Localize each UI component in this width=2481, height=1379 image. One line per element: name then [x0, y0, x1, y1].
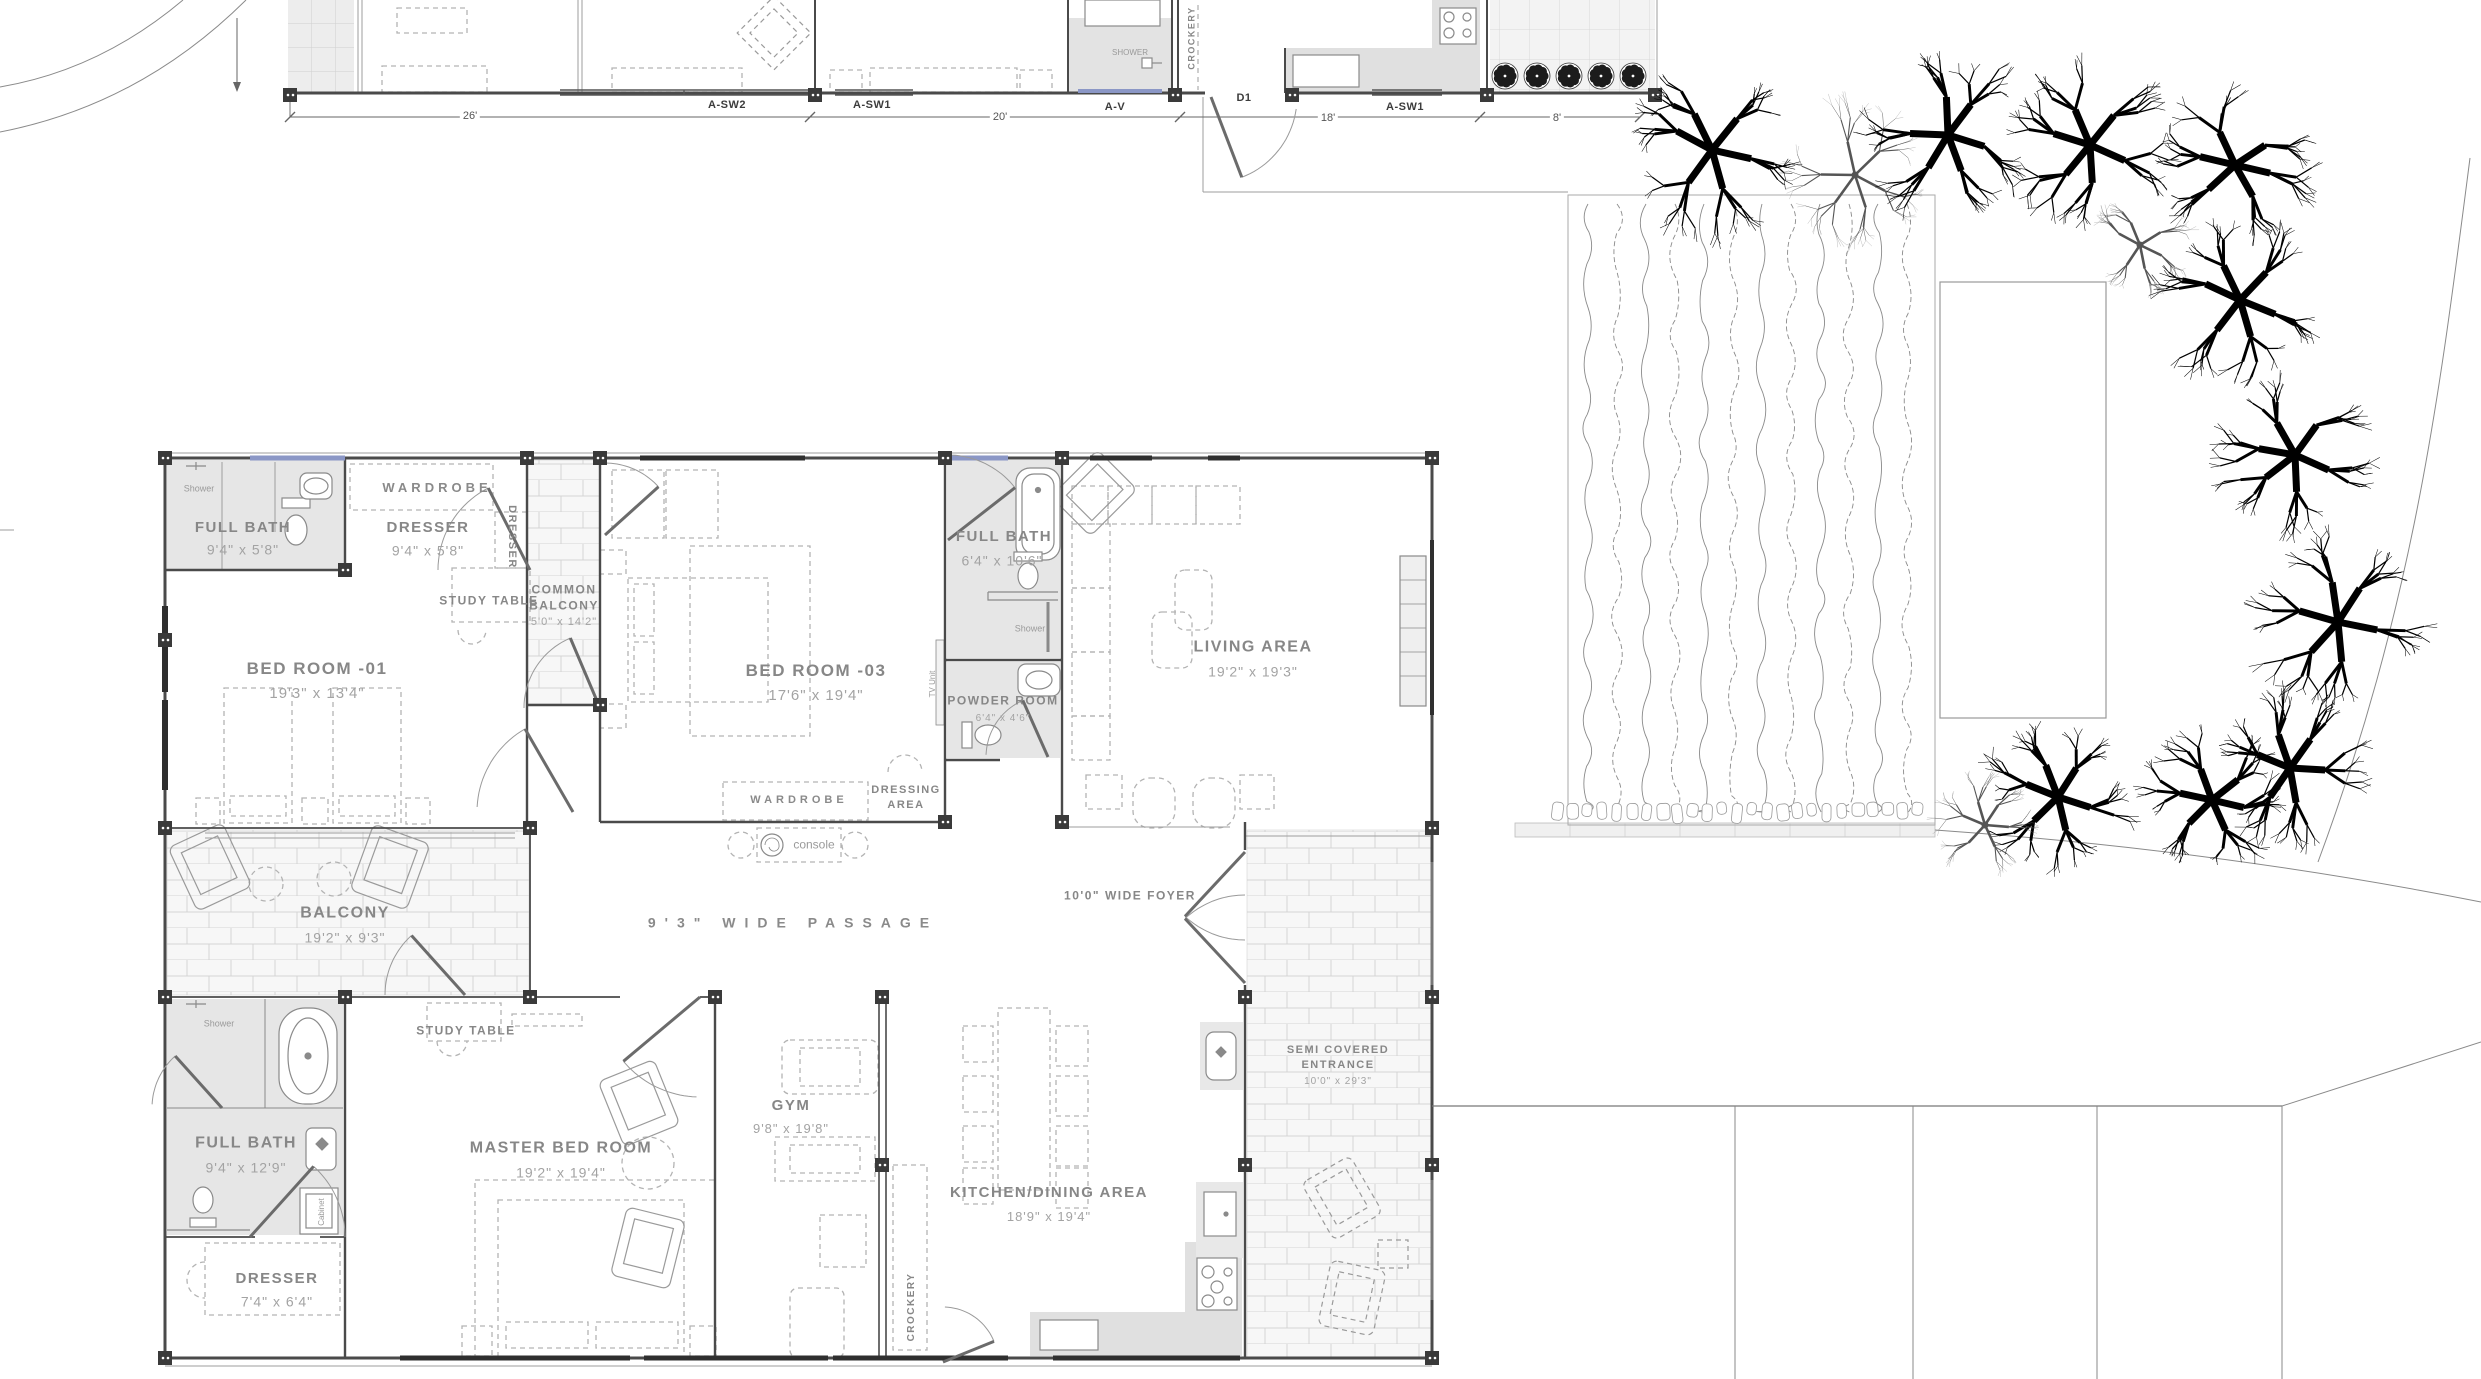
tree-symbol — [2155, 82, 2322, 247]
floor-plan-canvas — [0, 0, 2481, 1379]
armchairs — [168, 0, 1408, 1336]
tree-symbol — [1978, 721, 2141, 877]
columns — [158, 88, 1662, 1365]
tree-symbol — [2007, 53, 2182, 231]
tree-symbol — [2133, 724, 2286, 865]
stepping-stones — [1551, 801, 1923, 824]
tree-symbol — [2094, 203, 2199, 299]
floor-plan-page: WARDROBE FULL BATH 9'4" x 5'8" Shower DR… — [0, 0, 2481, 1379]
tree-symbol — [1779, 91, 1924, 254]
tree-symbol — [2209, 370, 2380, 543]
furniture-outlines — [187, 5, 1274, 1358]
tree-symbol — [2149, 218, 2320, 388]
water-texture — [1583, 204, 1912, 812]
